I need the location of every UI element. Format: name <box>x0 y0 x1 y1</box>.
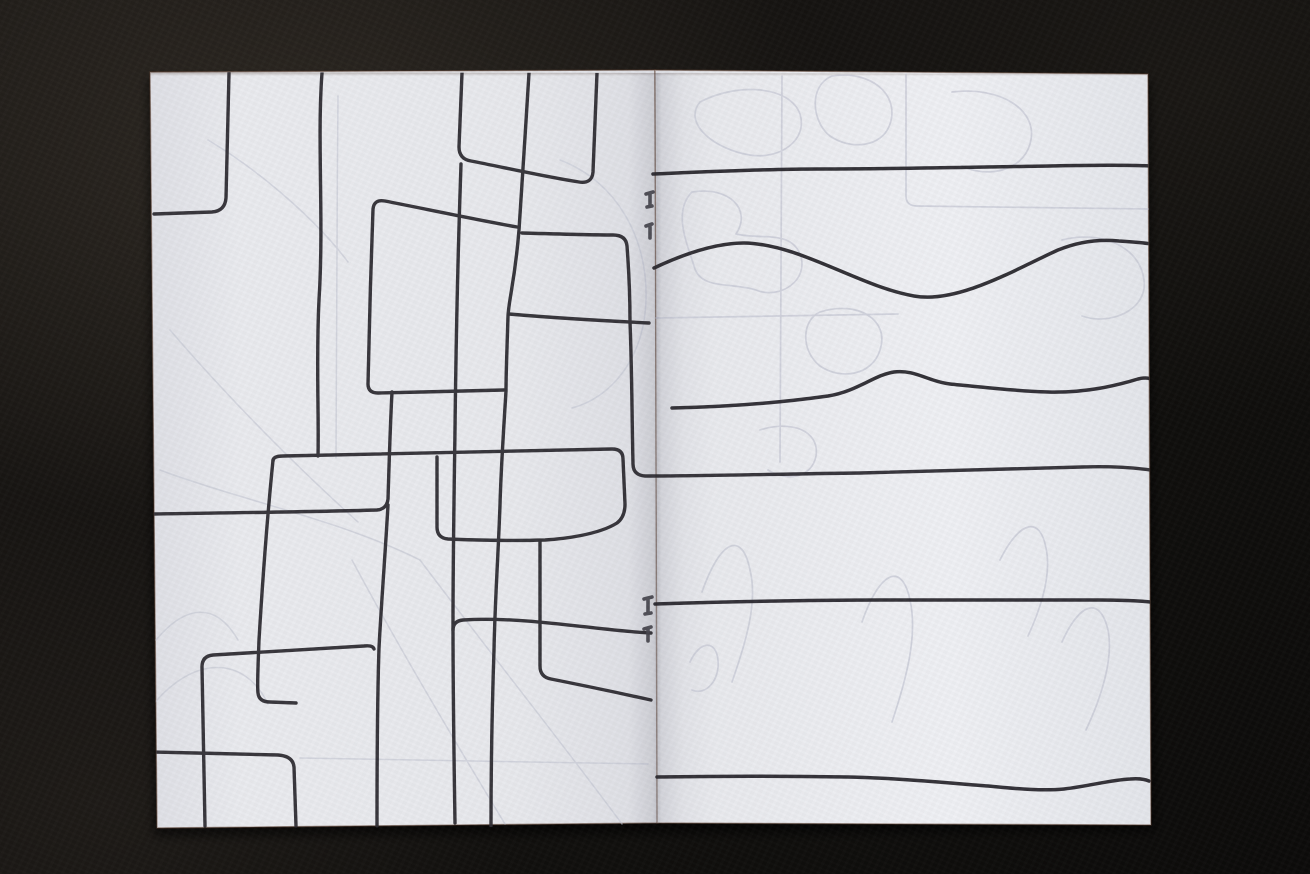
photo-of-open-sketchbook <box>0 0 1310 874</box>
right-page <box>655 70 1151 825</box>
spine-fold-shadow <box>628 70 684 824</box>
booklet-illustration <box>0 0 1310 874</box>
